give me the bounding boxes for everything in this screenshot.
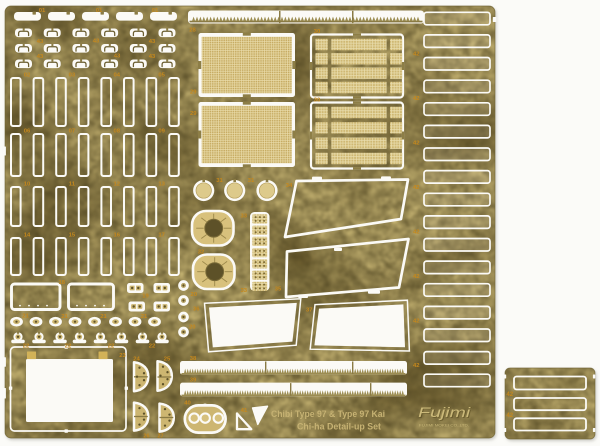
svg-text:20: 20 xyxy=(191,292,198,298)
svg-text:42: 42 xyxy=(506,412,513,419)
svg-text:12: 12 xyxy=(114,182,121,188)
svg-text:31: 31 xyxy=(216,178,223,184)
svg-text:43: 43 xyxy=(149,39,156,45)
svg-text:24: 24 xyxy=(133,357,140,363)
svg-text:42: 42 xyxy=(413,185,420,191)
svg-text:FUJIMI MOKEI CO.,LTD.: FUJIMI MOKEI CO.,LTD. xyxy=(419,423,469,427)
svg-text:43: 43 xyxy=(149,54,156,60)
svg-text:15: 15 xyxy=(69,233,76,239)
svg-text:33: 33 xyxy=(240,288,247,294)
svg-text:21: 21 xyxy=(100,314,107,320)
svg-text:33: 33 xyxy=(240,214,247,220)
svg-text:21: 21 xyxy=(22,313,29,319)
svg-text:29: 29 xyxy=(190,90,197,96)
svg-text:19: 19 xyxy=(142,294,149,300)
svg-text:38: 38 xyxy=(190,356,197,362)
svg-text:36: 36 xyxy=(193,307,200,313)
svg-text:29: 29 xyxy=(190,111,197,117)
svg-text:42: 42 xyxy=(413,52,420,58)
svg-text:11: 11 xyxy=(69,182,76,188)
svg-text:37: 37 xyxy=(306,308,313,314)
svg-text:41: 41 xyxy=(241,408,248,414)
svg-text:04: 04 xyxy=(114,73,121,79)
svg-text:09: 09 xyxy=(158,129,165,135)
svg-text:40: 40 xyxy=(184,401,191,407)
svg-text:02: 02 xyxy=(24,73,31,79)
svg-text:22: 22 xyxy=(23,343,30,349)
svg-text:18: 18 xyxy=(59,280,66,286)
svg-text:30: 30 xyxy=(314,29,321,35)
svg-text:30: 30 xyxy=(314,97,321,103)
svg-text:43: 43 xyxy=(93,39,100,45)
svg-text:03: 03 xyxy=(69,73,76,79)
svg-text:39: 39 xyxy=(190,378,197,384)
svg-text:01: 01 xyxy=(39,8,46,14)
svg-text:27: 27 xyxy=(157,434,163,440)
svg-text:28: 28 xyxy=(189,28,196,34)
svg-text:43: 43 xyxy=(37,39,44,45)
svg-text:14: 14 xyxy=(24,233,31,239)
svg-text:06: 06 xyxy=(24,129,31,135)
svg-text:21: 21 xyxy=(61,314,68,320)
svg-text:13: 13 xyxy=(158,182,165,188)
svg-text:01: 01 xyxy=(152,8,159,14)
svg-text:43: 43 xyxy=(114,54,121,60)
svg-text:43: 43 xyxy=(37,54,44,60)
svg-text:42: 42 xyxy=(506,391,513,398)
svg-text:42: 42 xyxy=(413,363,420,369)
svg-text:23: 23 xyxy=(119,353,126,359)
svg-text:08: 08 xyxy=(114,129,121,135)
svg-text:01: 01 xyxy=(96,8,103,14)
svg-text:22: 22 xyxy=(65,343,72,349)
svg-text:Chi-ha Detail-up Set: Chi-ha Detail-up Set xyxy=(297,422,382,433)
svg-text:34: 34 xyxy=(286,183,293,189)
svg-text:05: 05 xyxy=(158,73,165,79)
svg-text:42: 42 xyxy=(413,141,420,147)
svg-text:22: 22 xyxy=(149,343,156,349)
svg-text:26: 26 xyxy=(143,434,149,440)
svg-text:21: 21 xyxy=(141,314,148,320)
svg-text:07: 07 xyxy=(69,129,76,135)
svg-text:Chibi Type 97 & Type 97 Kai: Chibi Type 97 & Type 97 Kai xyxy=(271,409,385,420)
svg-text:42: 42 xyxy=(413,230,420,236)
svg-text:17: 17 xyxy=(158,233,165,239)
svg-text:31: 31 xyxy=(248,178,255,184)
svg-text:16: 16 xyxy=(114,233,121,239)
svg-text:20: 20 xyxy=(189,325,196,331)
svg-text:42: 42 xyxy=(413,96,420,102)
svg-text:Fujimi: Fujimi xyxy=(418,404,471,420)
svg-text:22: 22 xyxy=(108,343,115,349)
svg-text:42: 42 xyxy=(413,274,420,280)
svg-text:35: 35 xyxy=(275,287,282,293)
svg-text:25: 25 xyxy=(164,357,171,363)
svg-text:10: 10 xyxy=(24,182,31,188)
svg-text:42: 42 xyxy=(413,319,420,325)
svg-text:32: 32 xyxy=(198,250,205,256)
